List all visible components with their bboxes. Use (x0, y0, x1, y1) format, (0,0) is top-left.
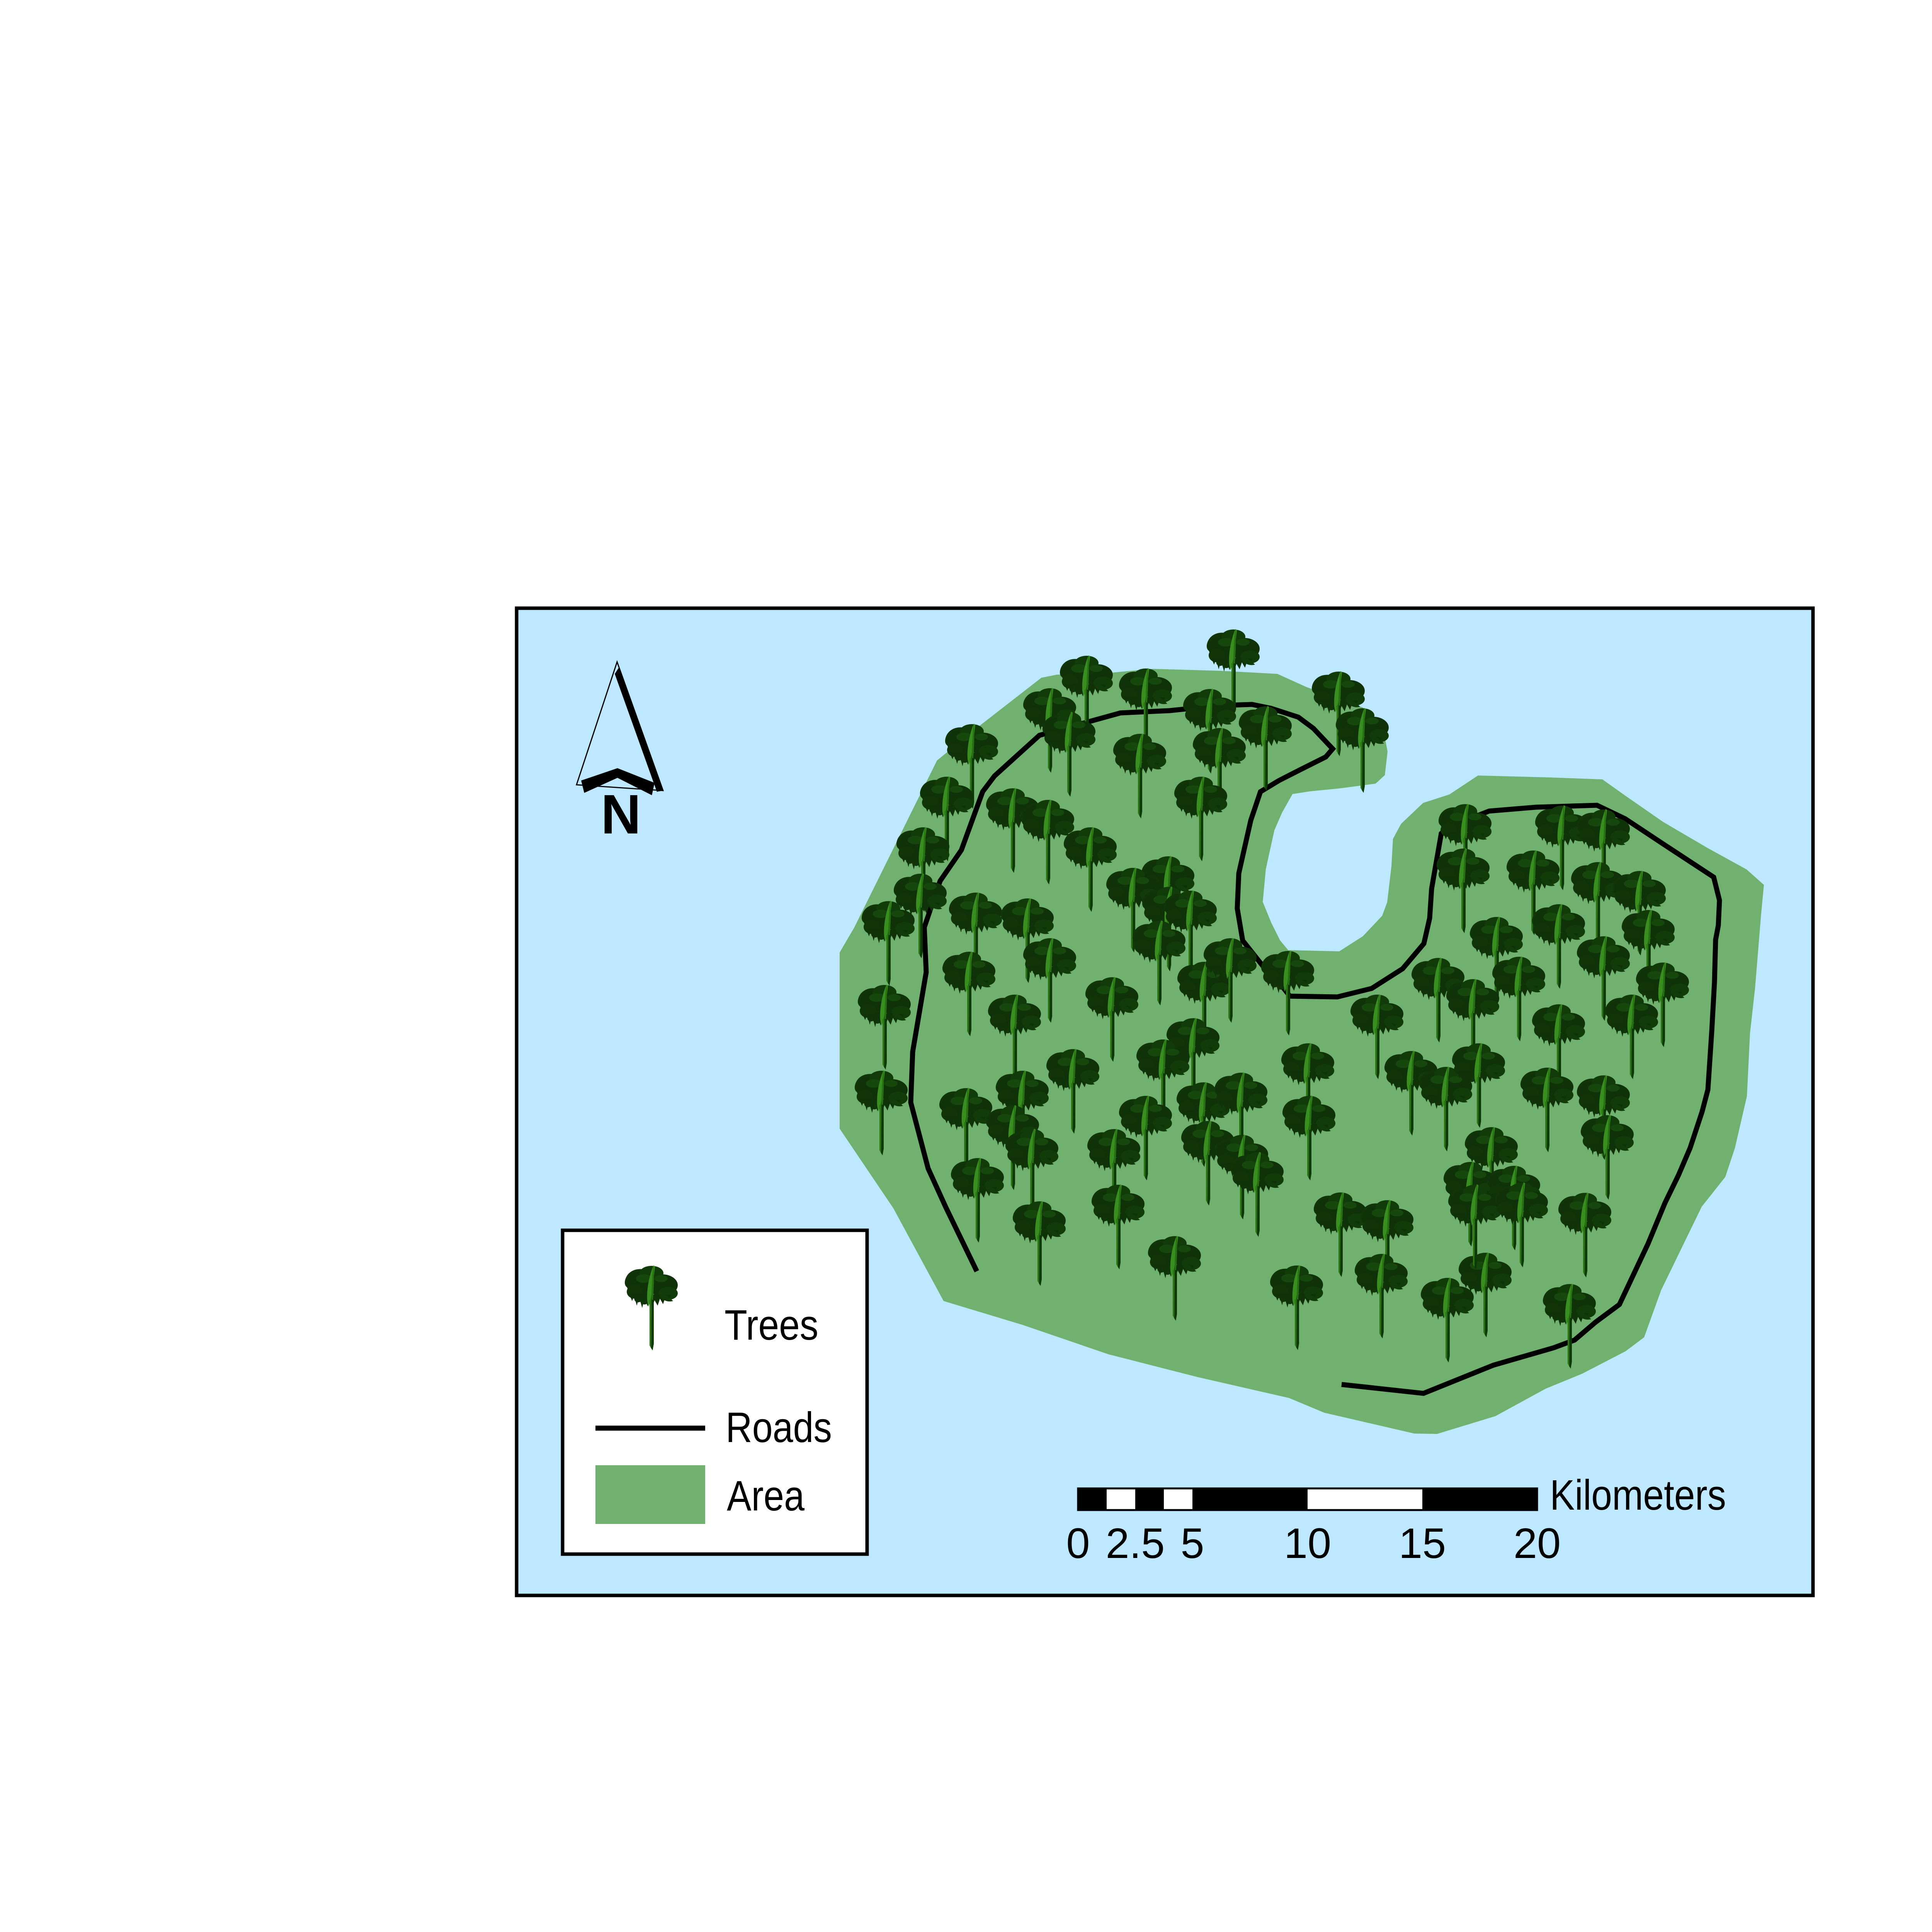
svg-text:Kilometers: Kilometers (1550, 1471, 1726, 1519)
svg-text:Area: Area (727, 1472, 805, 1520)
svg-text:0: 0 (1066, 1520, 1090, 1567)
svg-text:5: 5 (1180, 1520, 1204, 1567)
svg-text:2.5: 2.5 (1106, 1520, 1165, 1567)
svg-text:Roads: Roads (726, 1404, 832, 1451)
svg-text:N: N (601, 783, 641, 845)
svg-text:20: 20 (1514, 1520, 1561, 1567)
svg-text:Trees: Trees (724, 1301, 818, 1349)
svg-text:15: 15 (1399, 1520, 1446, 1567)
svg-text:10: 10 (1284, 1520, 1331, 1567)
